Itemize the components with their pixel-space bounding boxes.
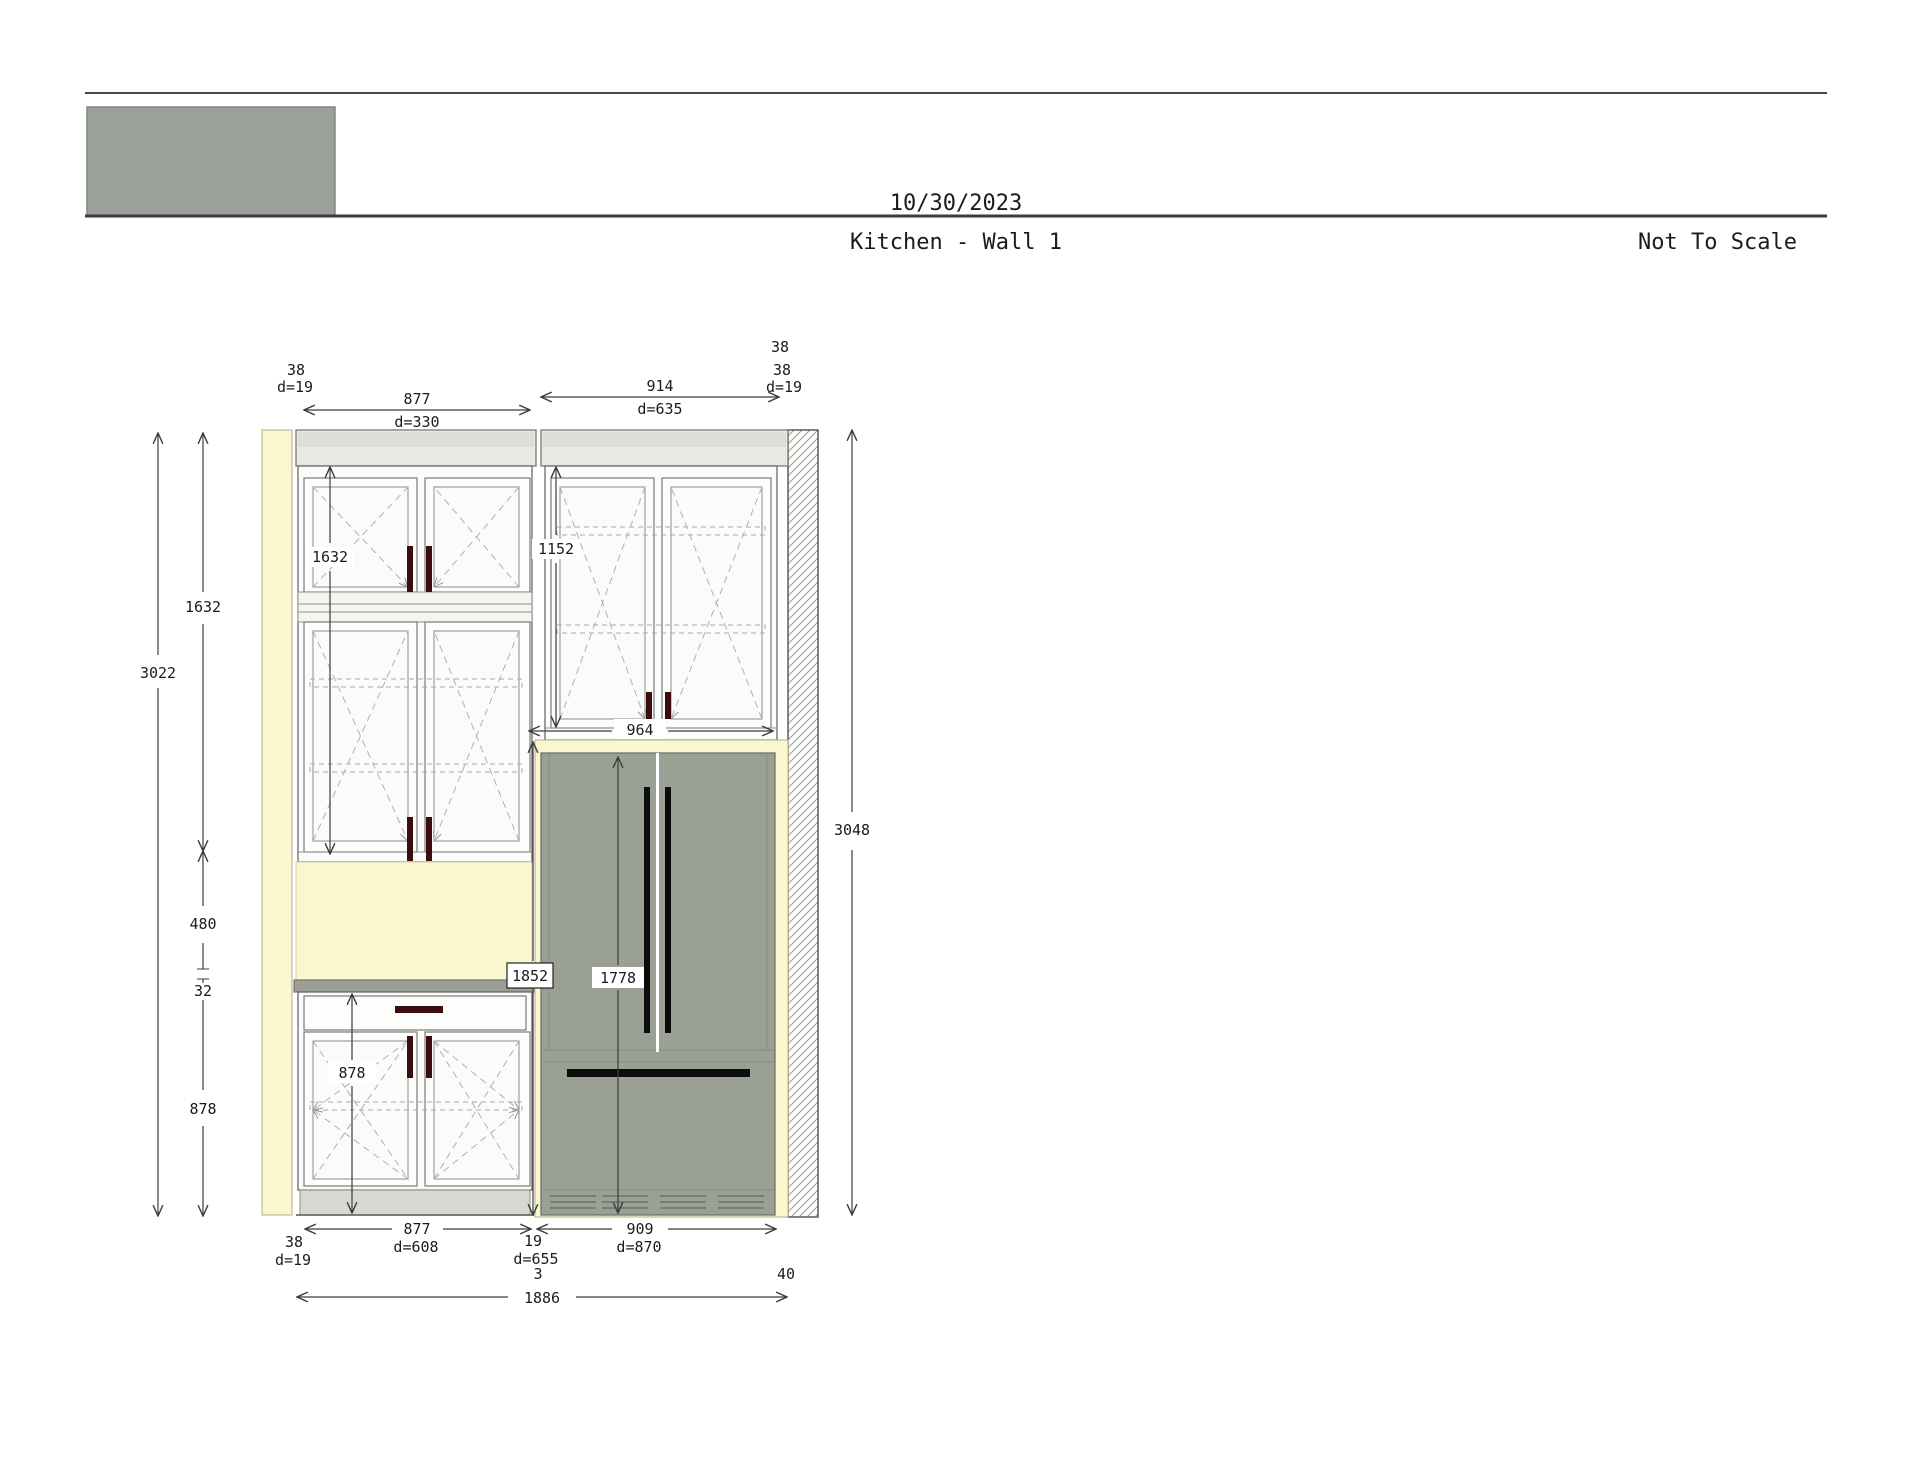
dim-left-upper: 1632 — [185, 598, 221, 616]
base-cabinet — [296, 992, 534, 1215]
door-handle — [426, 817, 432, 861]
door-handle — [407, 1036, 413, 1078]
toe-kick — [300, 1190, 530, 1215]
tall-upper-left-glass — [313, 487, 408, 587]
fridge-handle — [665, 787, 671, 1033]
dim-opening-width: 964 — [626, 721, 653, 739]
dim-fridge-height: 1778 — [600, 969, 636, 987]
backsplash-wall — [296, 862, 532, 980]
scale-note: Not To Scale — [1638, 230, 1797, 255]
dim-left-base: 878 — [189, 1100, 216, 1118]
door-handle — [665, 692, 671, 719]
dim-base-height: 878 — [338, 1064, 365, 1082]
dim-top-left-filler-width: 38 — [287, 361, 305, 379]
dim-left-total: 3022 — [140, 664, 176, 682]
door-handle — [426, 1036, 432, 1078]
dim-top-right-filler-depth: d=19 — [766, 378, 802, 396]
upper-cabinet-right — [545, 466, 777, 740]
door-handle — [407, 546, 413, 592]
dim-right-total: 3048 — [834, 821, 870, 839]
dim-enclosure-height: 1852 — [512, 967, 548, 985]
door-handle — [426, 546, 432, 592]
dim-top-right-filler-b: 38 — [773, 361, 791, 379]
dim-left-countertop: 32 — [194, 982, 212, 1000]
countertop — [294, 980, 536, 992]
dim-fridge-opening-depth: d=870 — [616, 1238, 661, 1256]
dim-upper-cab-height: 1152 — [538, 540, 574, 558]
door-handle — [407, 817, 413, 861]
tall-cabinet-mid-rail — [298, 592, 532, 622]
dim-tall-cab-depth: d=330 — [394, 413, 439, 431]
dim-mid-filler-width: 19 — [524, 1232, 542, 1250]
title-block: 10/30/2023 Kitchen - Wall 1 Not To Scale — [85, 93, 1827, 255]
tall-cabinet-upper — [298, 466, 532, 862]
dim-mid-filler-note: 3 — [533, 1265, 542, 1283]
dim-upper-cab-width: 914 — [646, 377, 673, 395]
dim-tall-upper-height: 1632 — [312, 548, 348, 566]
dim-bottom-right-filler: 40 — [777, 1265, 795, 1283]
elevation-drawing: 10/30/2023 Kitchen - Wall 1 Not To Scale — [0, 0, 1920, 1484]
fridge-door-gap — [656, 753, 659, 1052]
dim-base-cab-depth: d=608 — [393, 1238, 438, 1256]
dim-base-cab-width: 877 — [403, 1220, 430, 1238]
dimensions-bottom: 877 d=608 38 d=19 19 d=655 3 909 d=870 4… — [275, 1220, 795, 1307]
dim-fridge-opening-width: 909 — [626, 1220, 653, 1238]
fridge-handle — [644, 787, 650, 1033]
drawer-handle — [395, 1006, 443, 1013]
right-wall-hatch — [788, 430, 818, 1217]
dim-bottom-left-filler-width: 38 — [285, 1233, 303, 1251]
dim-top-right-filler-a: 38 — [771, 338, 789, 356]
dim-upper-cab-depth: d=635 — [637, 400, 682, 418]
dimensions-left: 3022 1632 480 32 878 — [140, 433, 221, 1216]
dim-bottom-total: 1886 — [524, 1289, 560, 1307]
crown-right-top-band — [543, 432, 786, 447]
dimensions-top: 38 d=19 877 d=330 914 d=635 38 38 d=19 — [277, 338, 802, 431]
crown-molding-left — [296, 430, 536, 466]
page-title: Kitchen - Wall 1 — [850, 230, 1062, 255]
dim-top-left-filler-depth: d=19 — [277, 378, 313, 396]
dimensions-right: 3048 — [834, 430, 870, 1215]
dim-left-gap: 480 — [189, 915, 216, 933]
fridge-area — [535, 740, 788, 1217]
drawing-date: 10/30/2023 — [890, 191, 1022, 216]
door-handle — [646, 692, 652, 719]
freezer-handle — [567, 1069, 750, 1077]
logo-placeholder — [87, 107, 335, 215]
crown-left-top-band — [298, 432, 534, 447]
dim-tall-cab-width: 877 — [403, 390, 430, 408]
dim-bottom-left-filler-depth: d=19 — [275, 1251, 311, 1269]
crown-molding-right — [541, 430, 788, 466]
left-wall-filler — [262, 430, 292, 1215]
kitchen-elevation-page: 10/30/2023 Kitchen - Wall 1 Not To Scale — [0, 0, 1920, 1484]
